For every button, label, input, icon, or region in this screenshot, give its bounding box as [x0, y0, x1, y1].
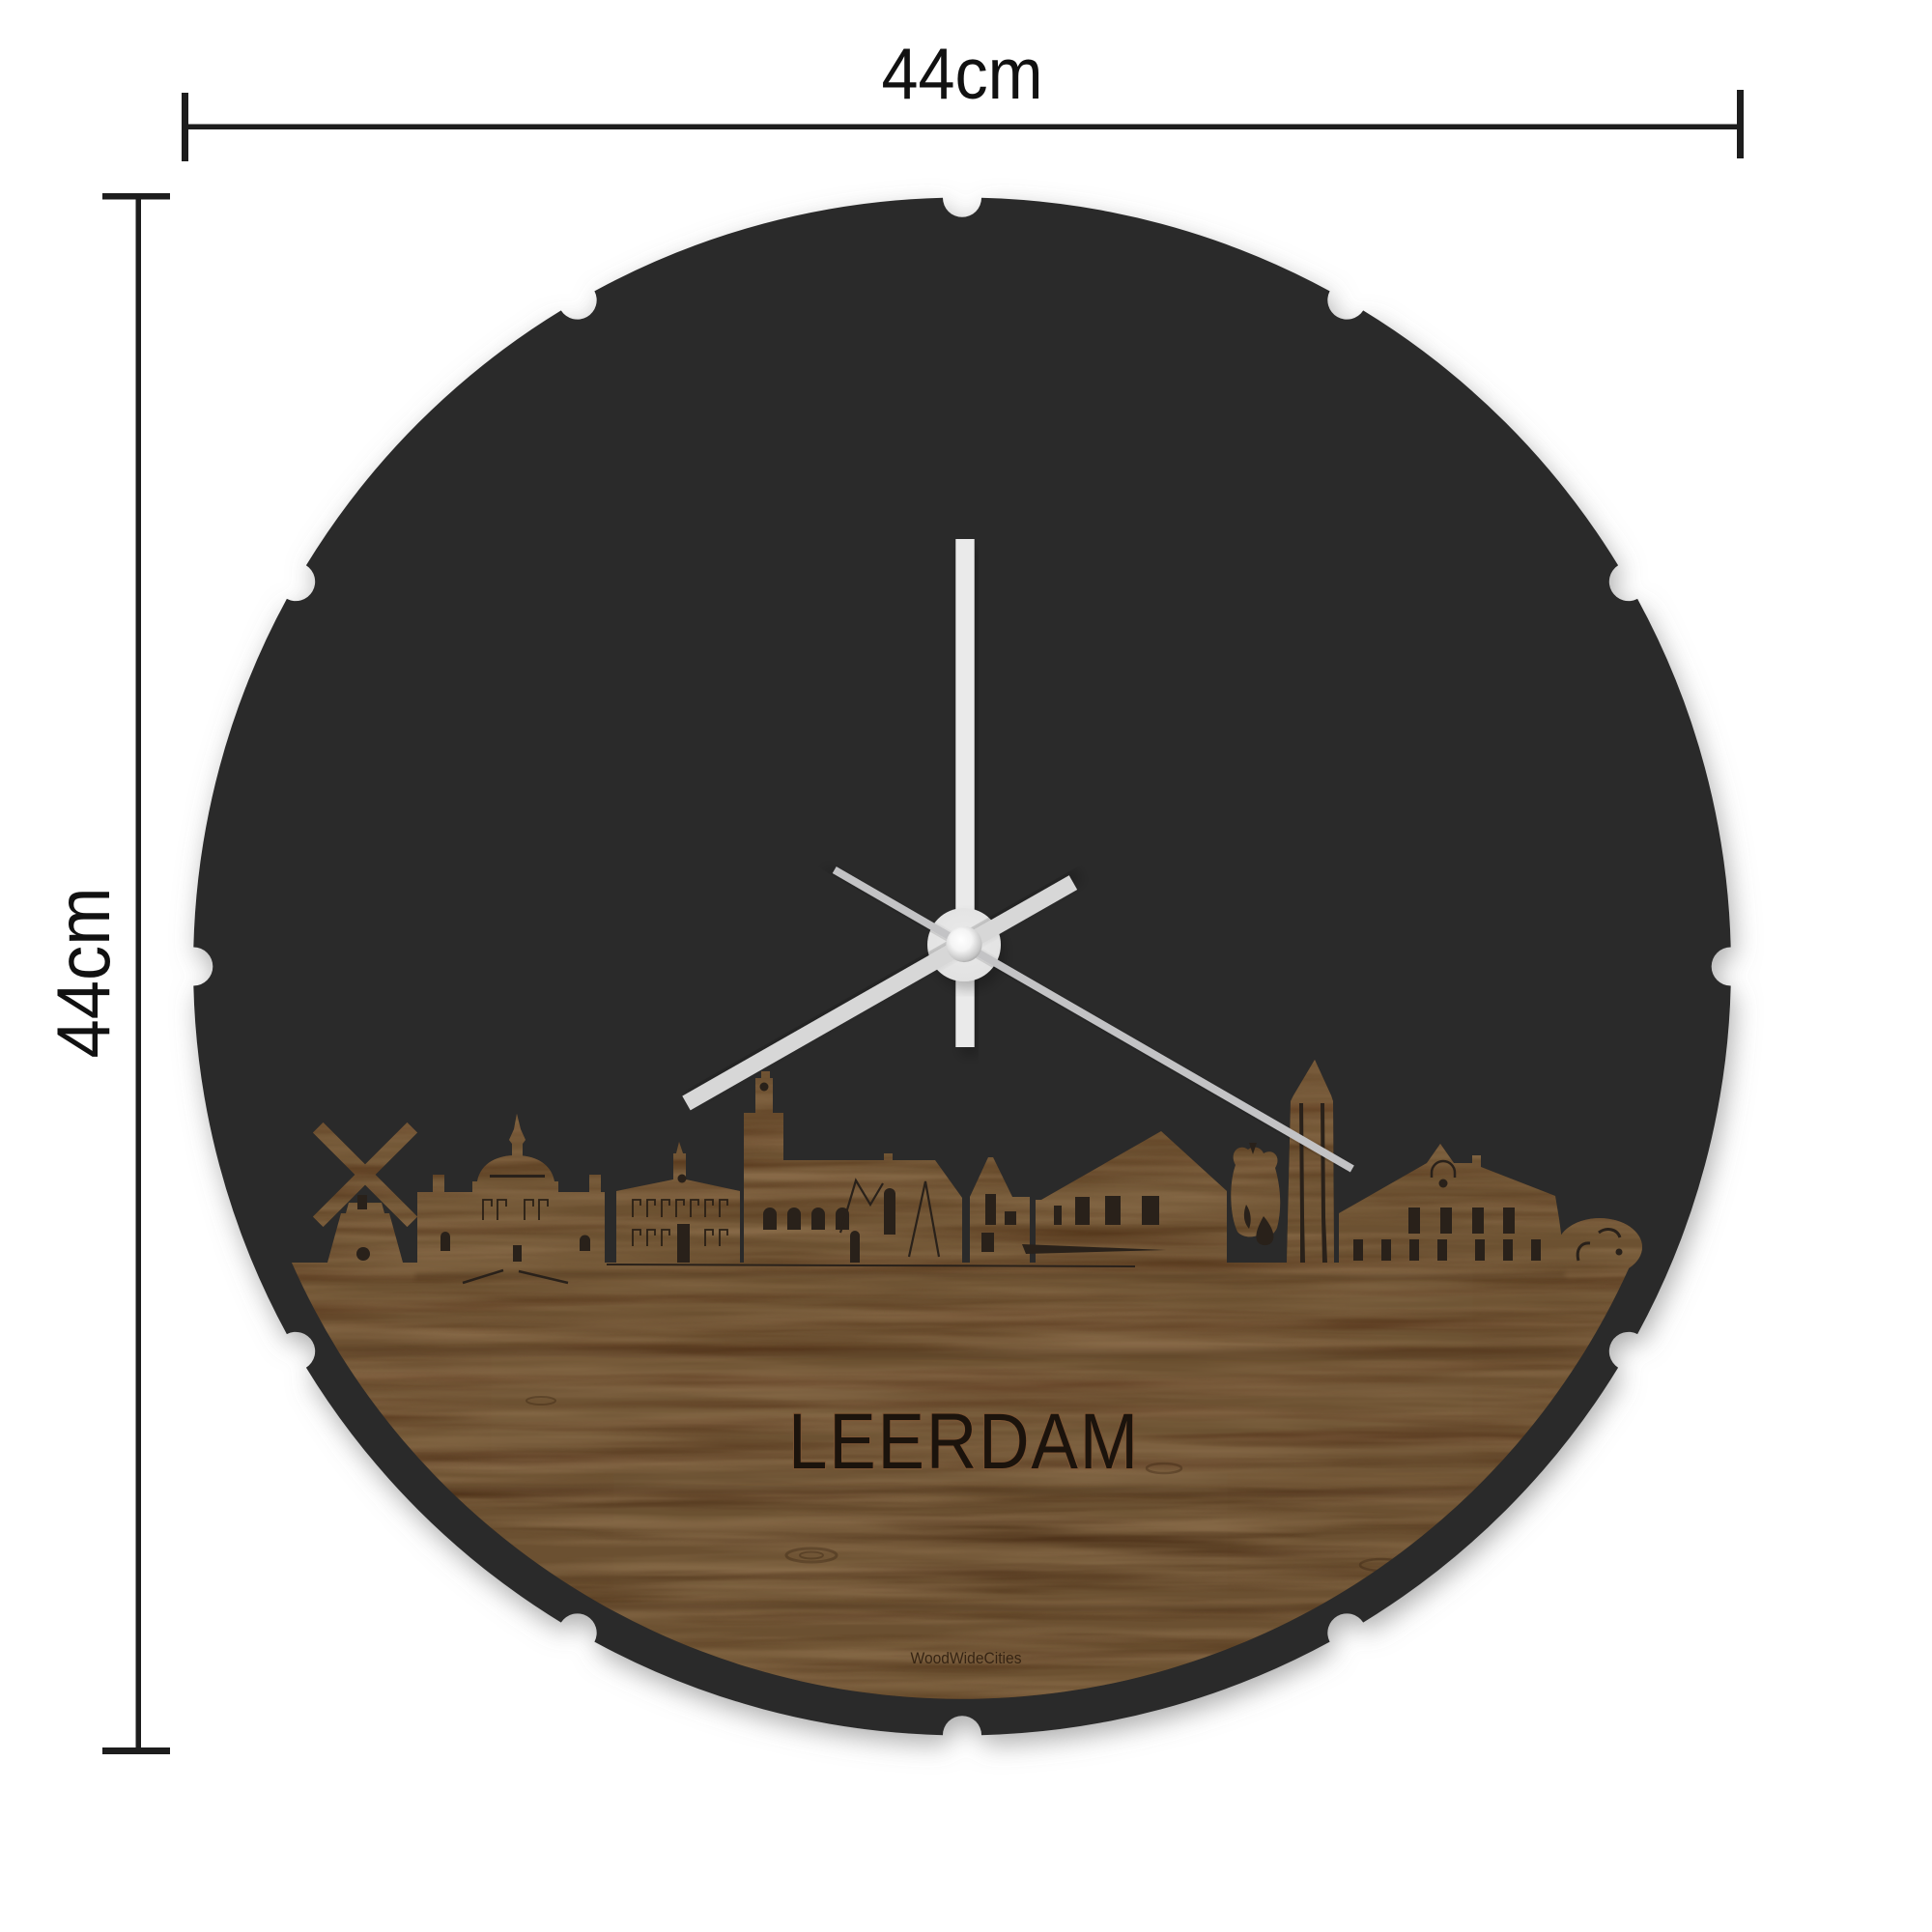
svg-text:44cm: 44cm — [41, 888, 126, 1059]
svg-text:LEERDAM: LEERDAM — [788, 1398, 1140, 1486]
svg-text:WoodWideCities: WoodWideCities — [911, 1649, 1022, 1667]
svg-text:44cm: 44cm — [882, 33, 1043, 114]
